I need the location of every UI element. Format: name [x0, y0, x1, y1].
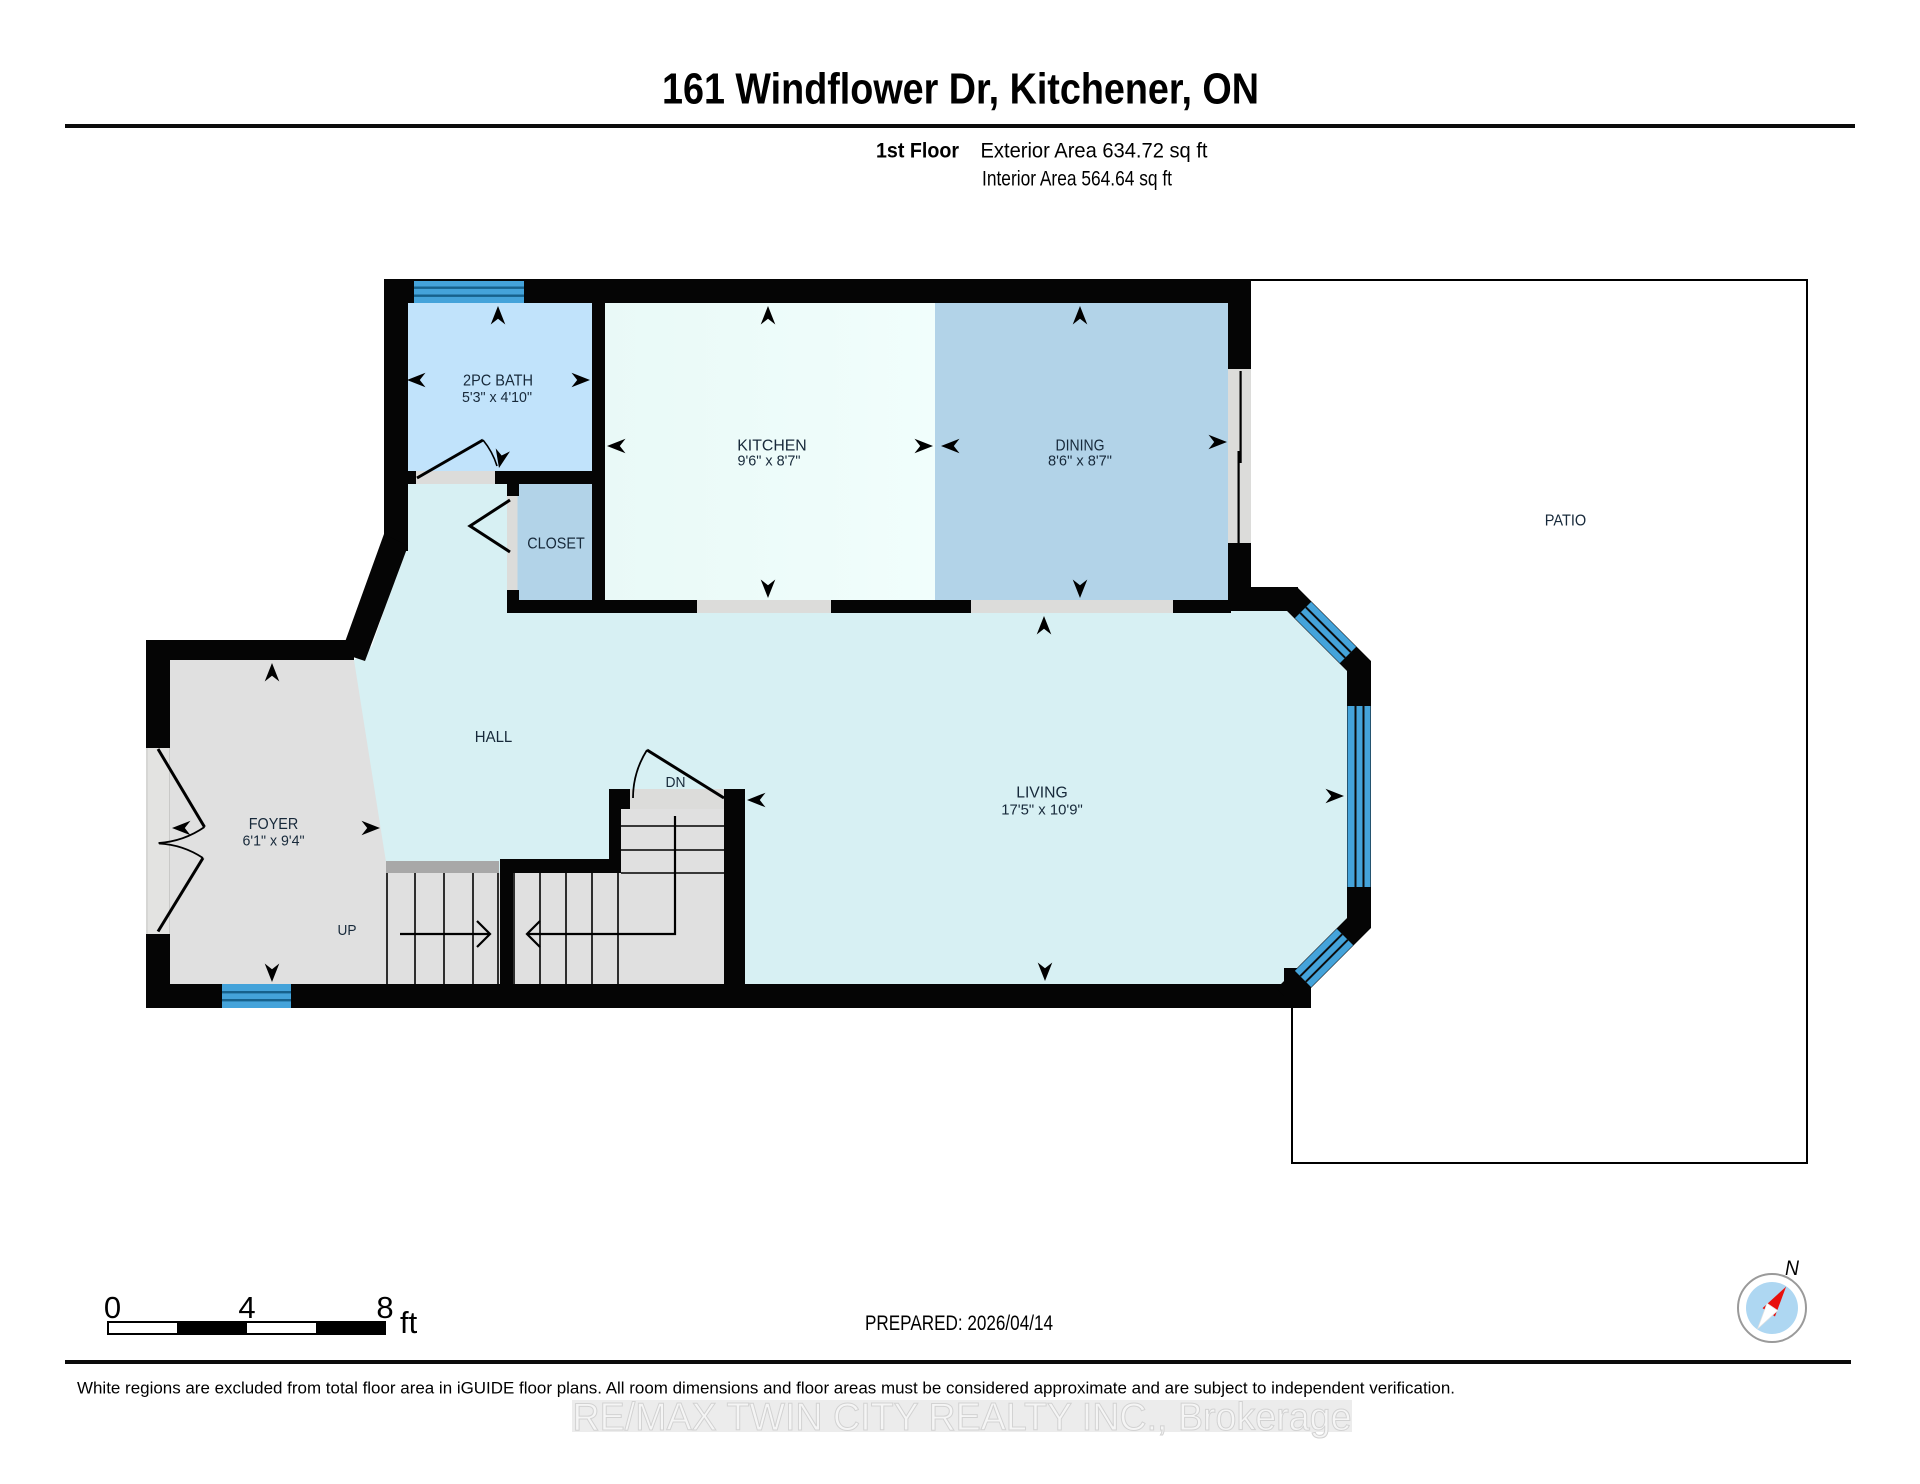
svg-text:Interior Area 564.64 sq ft: Interior Area 564.64 sq ft	[982, 168, 1172, 191]
svg-text:White regions are excluded fro: White regions are excluded from total fl…	[77, 1379, 1455, 1398]
svg-text:Exterior Area 634.72 sq ft: Exterior Area 634.72 sq ft	[981, 140, 1208, 163]
svg-text:PREPARED: 2026/04/14: PREPARED: 2026/04/14	[865, 1312, 1053, 1335]
svg-text:CLOSET: CLOSET	[527, 536, 585, 553]
svg-text:N: N	[1785, 1257, 1800, 1280]
svg-text:8'6" x 8'7": 8'6" x 8'7"	[1048, 453, 1112, 470]
svg-text:HALL: HALL	[475, 729, 513, 746]
svg-text:161 Windflower Dr, Kitchener,: 161 Windflower Dr, Kitchener, ON	[662, 65, 1259, 114]
svg-text:RE/MAX TWIN CITY REALTY INC.,: RE/MAX TWIN CITY REALTY INC., Brokerage	[573, 1396, 1352, 1439]
svg-text:1st Floor: 1st Floor	[876, 140, 959, 163]
svg-text:ft: ft	[400, 1305, 418, 1340]
svg-text:2PC BATH: 2PC BATH	[463, 373, 533, 390]
svg-text:0: 0	[104, 1290, 121, 1325]
svg-text:4: 4	[238, 1290, 255, 1325]
svg-text:FOYER: FOYER	[249, 816, 299, 833]
svg-text:5'3" x 4'10": 5'3" x 4'10"	[462, 389, 532, 406]
svg-text:17'5" x 10'9": 17'5" x 10'9"	[1001, 802, 1083, 819]
svg-text:UP: UP	[338, 922, 357, 939]
svg-text:8: 8	[376, 1290, 393, 1325]
svg-text:DN: DN	[666, 774, 686, 791]
svg-text:LIVING: LIVING	[1016, 785, 1068, 802]
svg-text:PATIO: PATIO	[1545, 513, 1587, 530]
svg-text:9'6" x 8'7": 9'6" x 8'7"	[738, 453, 801, 470]
svg-text:6'1" x 9'4": 6'1" x 9'4"	[243, 833, 305, 850]
